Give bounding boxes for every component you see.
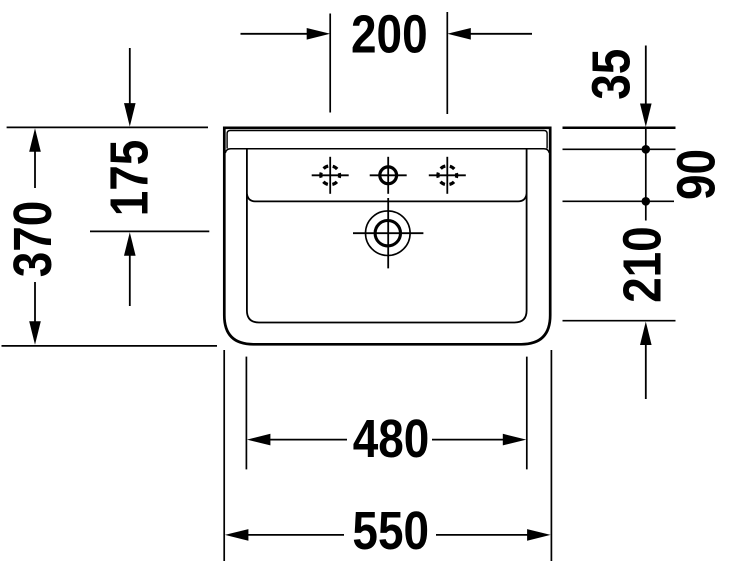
svg-text:210: 210 bbox=[612, 226, 672, 303]
svg-text:200: 200 bbox=[351, 4, 428, 64]
svg-text:480: 480 bbox=[353, 409, 430, 469]
svg-text:370: 370 bbox=[2, 201, 62, 278]
svg-text:90: 90 bbox=[666, 149, 726, 200]
svg-text:175: 175 bbox=[99, 140, 159, 217]
svg-text:550: 550 bbox=[352, 501, 429, 561]
svg-text:35: 35 bbox=[581, 49, 641, 100]
